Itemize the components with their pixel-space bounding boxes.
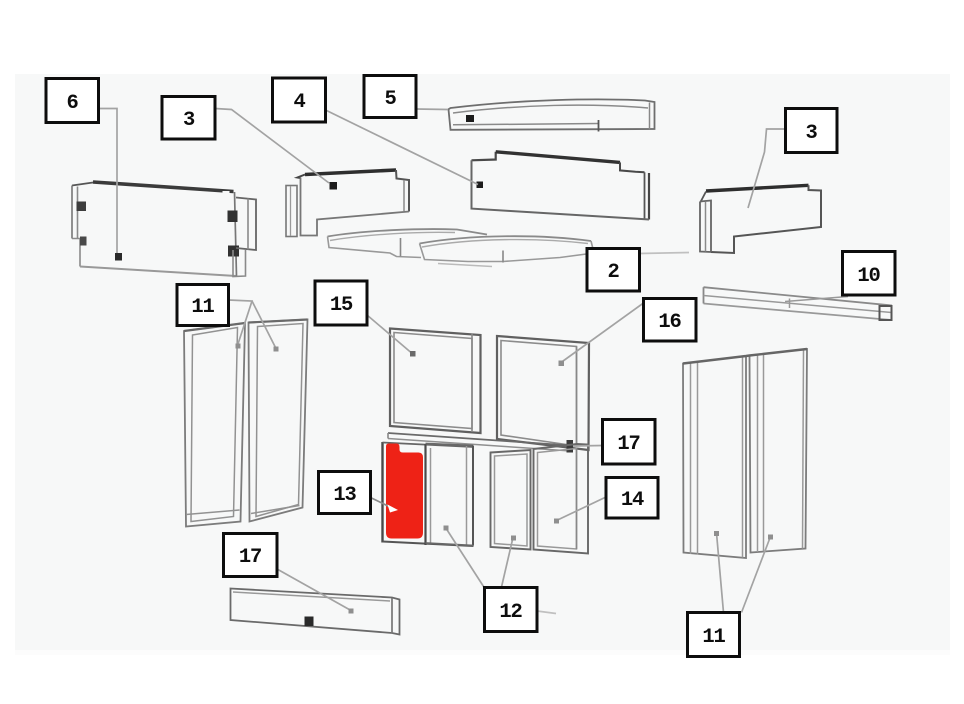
svg-text:4: 4 — [293, 91, 305, 114]
svg-text:15: 15 — [330, 294, 353, 317]
svg-text:5: 5 — [384, 88, 396, 111]
svg-text:17: 17 — [617, 433, 639, 456]
svg-text:6: 6 — [66, 92, 78, 115]
svg-text:3: 3 — [183, 109, 195, 132]
svg-text:11: 11 — [702, 626, 725, 649]
svg-text:16: 16 — [658, 311, 681, 334]
svg-text:14: 14 — [621, 489, 644, 512]
svg-text:10: 10 — [857, 265, 880, 288]
svg-text:11: 11 — [191, 296, 214, 319]
svg-text:3: 3 — [805, 122, 817, 145]
svg-text:17: 17 — [239, 546, 261, 569]
svg-text:13: 13 — [333, 484, 356, 507]
svg-text:12: 12 — [499, 601, 522, 624]
svg-text:2: 2 — [607, 261, 619, 284]
